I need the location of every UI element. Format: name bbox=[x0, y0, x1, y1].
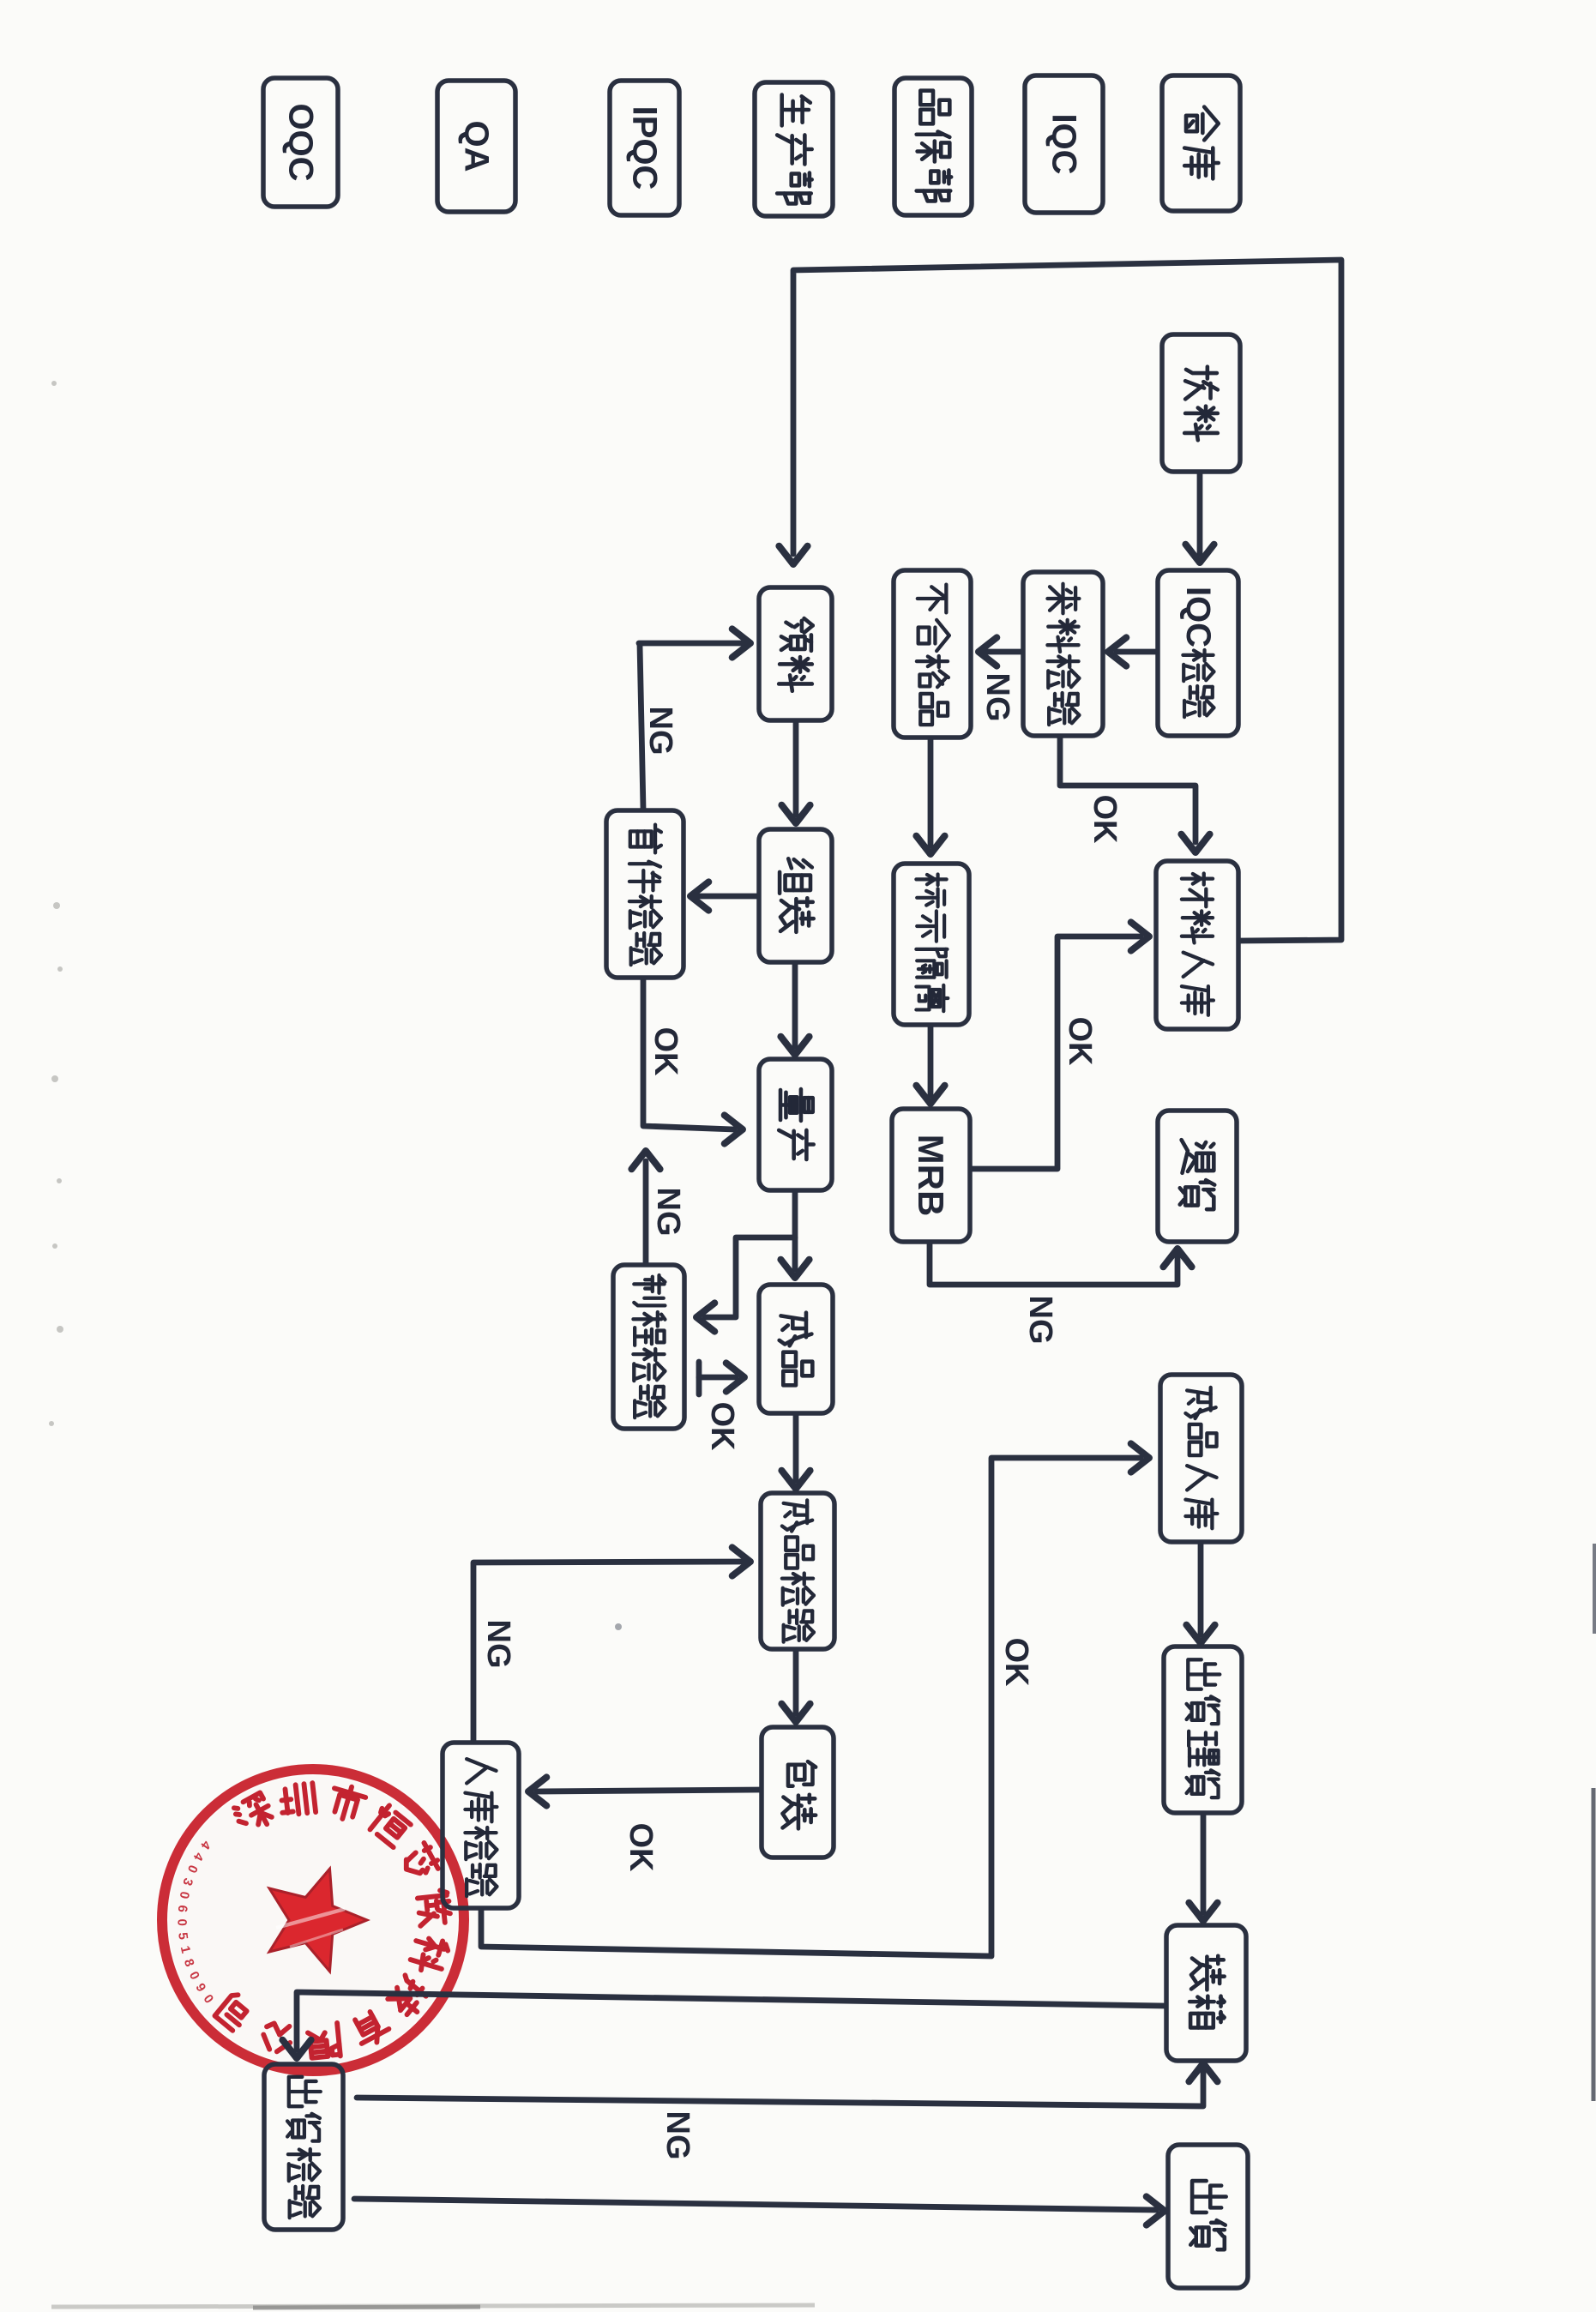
svg-text:NG: NG bbox=[480, 1620, 516, 1669]
svg-text:OK: OK bbox=[704, 1402, 740, 1452]
svg-text:QA: QA bbox=[458, 121, 496, 172]
svg-text:IQC: IQC bbox=[1179, 587, 1217, 647]
svg-text:OK: OK bbox=[623, 1823, 659, 1873]
svg-text:NG: NG bbox=[659, 2111, 696, 2160]
svg-text:NG: NG bbox=[1022, 1296, 1058, 1345]
svg-text:OK: OK bbox=[1087, 795, 1123, 845]
svg-text:NG: NG bbox=[642, 707, 678, 756]
svg-text:OQC: OQC bbox=[282, 103, 320, 181]
svg-text:IQC: IQC bbox=[1045, 113, 1083, 174]
svg-text:MRB: MRB bbox=[911, 1135, 951, 1217]
svg-text:0: 0 bbox=[174, 1918, 189, 1926]
svg-text:OK: OK bbox=[998, 1638, 1034, 1688]
svg-text:NG: NG bbox=[979, 673, 1015, 722]
svg-text:OK: OK bbox=[1062, 1017, 1098, 1067]
svg-text:6: 6 bbox=[175, 1905, 190, 1913]
svg-text:IPQC: IPQC bbox=[626, 106, 664, 190]
svg-text:NG: NG bbox=[650, 1188, 686, 1237]
svg-text:OK: OK bbox=[647, 1027, 684, 1077]
